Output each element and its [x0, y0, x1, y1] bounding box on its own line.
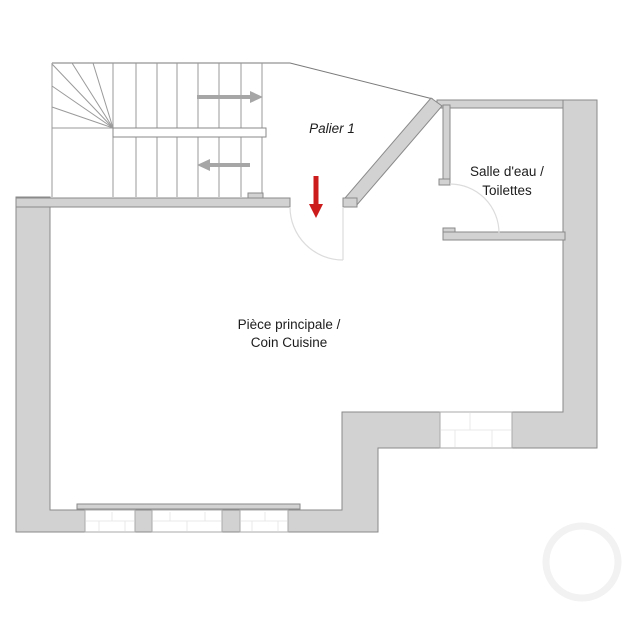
bathroom-left-wall: [443, 105, 450, 184]
diagonal-wall: [345, 98, 442, 206]
bathroom-bottom-wall: [443, 232, 565, 240]
stair-winder-lines: [52, 63, 113, 128]
ghost-circle-mark: [546, 526, 618, 598]
left-exterior-wall: [16, 197, 85, 532]
bathroom-label-line1: Salle d'eau /: [470, 164, 544, 179]
bottom-wall-mullion: [135, 510, 152, 532]
bottom-right-step-wall: [288, 412, 440, 532]
bottom-wall-mullion: [222, 510, 240, 532]
main-room-label-line2: Coin Cuisine: [251, 335, 328, 350]
entry-arrow-icon: [309, 176, 323, 218]
bathroom-top-wall: [437, 100, 563, 108]
landing-label: Palier 1: [309, 121, 355, 136]
stair-up-arrow-icon: [197, 91, 263, 103]
main-room-top-wall: [16, 198, 290, 207]
bathroom-left-wall-foot: [439, 179, 450, 185]
diagonal-wall-stub: [343, 198, 357, 207]
stair-open-boundary: [52, 63, 433, 99]
main-room-label-line1: Pièce principale /: [238, 317, 341, 332]
bathroom-label-line2: Toilettes: [482, 183, 532, 198]
doors: [290, 184, 499, 260]
stair-landing-bar: [113, 128, 266, 137]
right-exterior-wall: [512, 100, 597, 448]
floor-plan: Palier 1 Salle d'eau / Toilettes Pièce p…: [0, 0, 640, 622]
window-sill: [77, 504, 300, 509]
stair-down-arrow-icon: [197, 159, 250, 171]
